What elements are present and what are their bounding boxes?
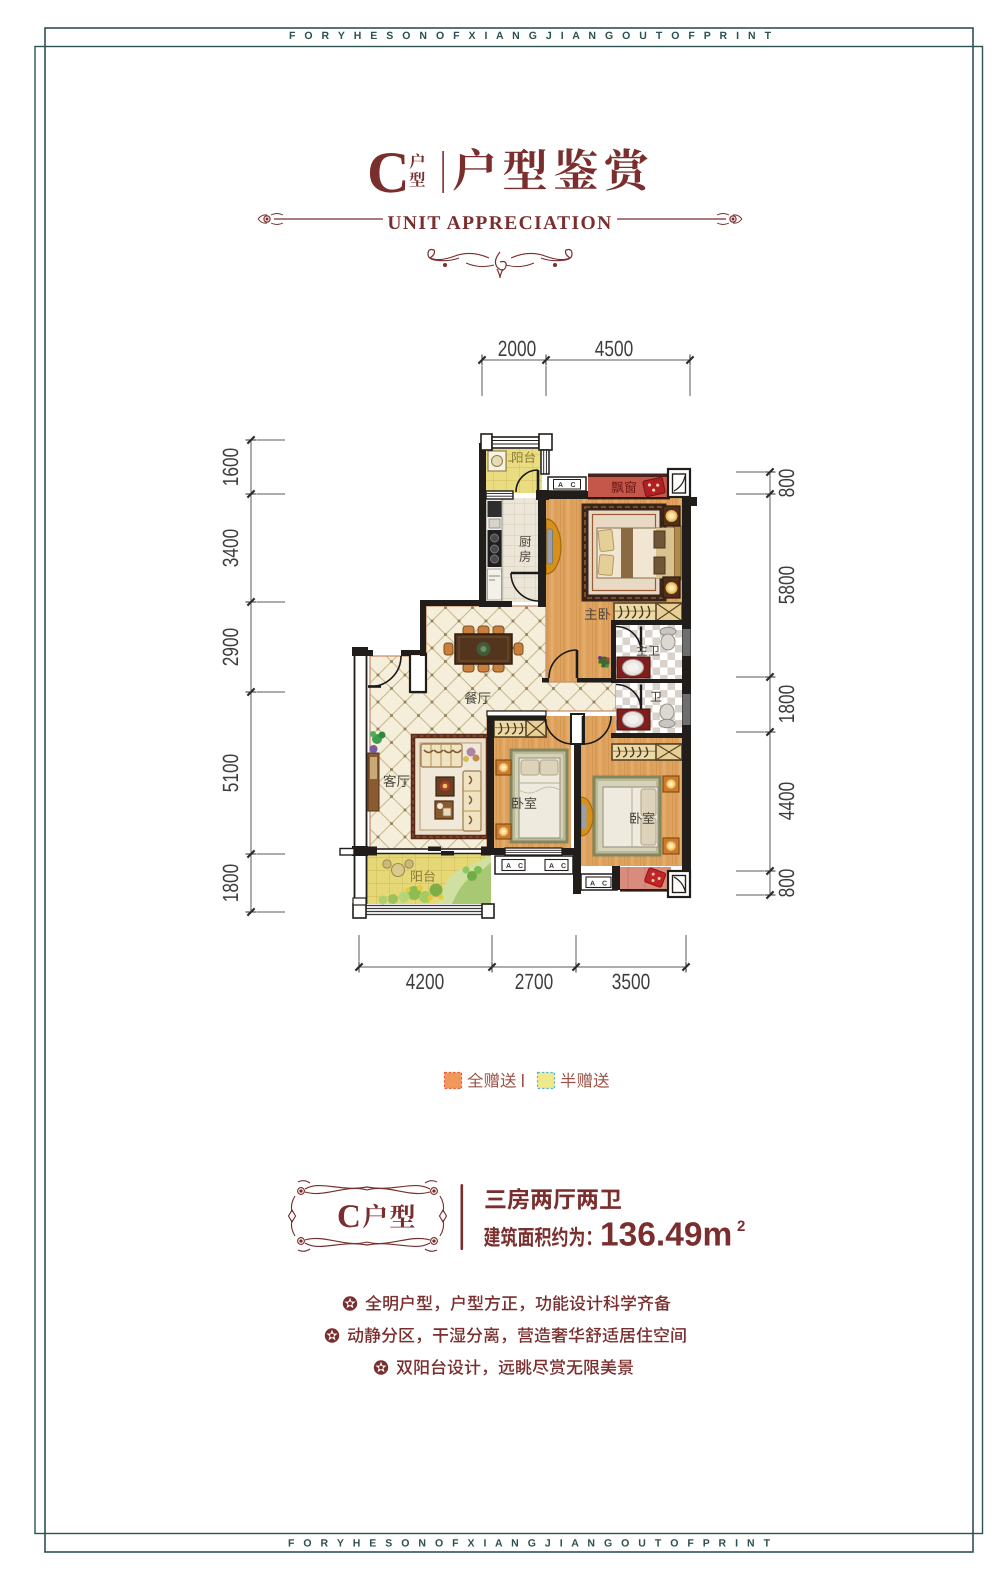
svg-text:4500: 4500: [595, 336, 633, 361]
svg-text:UNIT APPRECIATION: UNIT APPRECIATION: [387, 213, 612, 234]
svg-text:800: 800: [774, 469, 799, 498]
svg-text:4400: 4400: [774, 782, 799, 820]
svg-text:AC: AC: [590, 881, 614, 888]
svg-text:1800: 1800: [218, 864, 243, 902]
svg-text:C: C: [337, 1199, 361, 1235]
svg-text:C: C: [367, 139, 410, 205]
svg-text:1800: 1800: [774, 685, 799, 723]
svg-text:4200: 4200: [406, 969, 444, 994]
svg-text:1600: 1600: [218, 448, 243, 486]
svg-text:3500: 3500: [612, 969, 650, 994]
svg-text:2900: 2900: [218, 628, 243, 666]
svg-text:AC: AC: [549, 863, 573, 870]
svg-text:5100: 5100: [218, 754, 243, 792]
svg-text:2: 2: [737, 1218, 745, 1235]
svg-text:800: 800: [774, 869, 799, 898]
svg-text:AC: AC: [506, 863, 530, 870]
svg-text:AC: AC: [558, 482, 583, 489]
svg-text:3400: 3400: [218, 529, 243, 567]
svg-text:2000: 2000: [498, 336, 536, 361]
svg-text:5800: 5800: [774, 566, 799, 604]
svg-text:2700: 2700: [515, 969, 553, 994]
svg-text:136.49m: 136.49m: [600, 1217, 732, 1254]
